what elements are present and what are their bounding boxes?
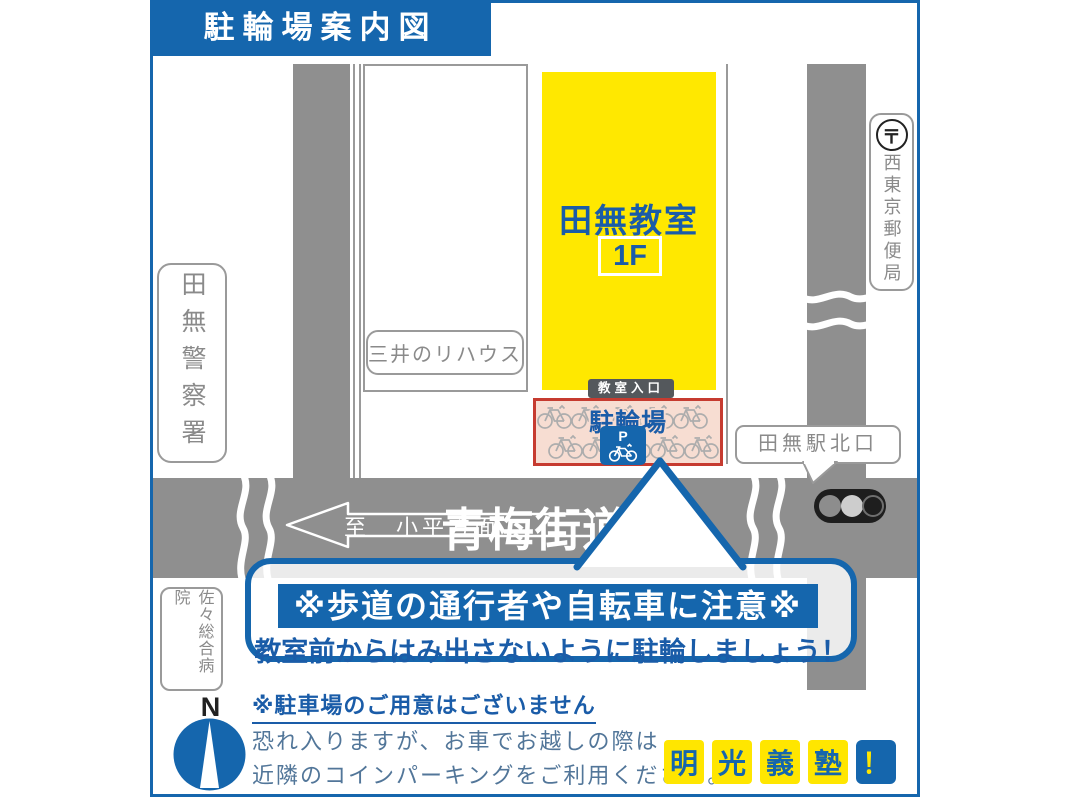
logo-exclamation-tile: ！ [856, 740, 896, 784]
landmark-post-office: 〒 西東京郵便局 [869, 113, 914, 291]
parcel-line [726, 64, 728, 464]
post-office-icon: 〒 [876, 119, 908, 151]
classroom-name: 田無教室 [542, 194, 716, 242]
parcel-line [359, 64, 361, 478]
parcel-line [353, 64, 355, 478]
logo-char: 塾 [814, 742, 842, 782]
car-note-2: 近隣のコインパーキングをご利用ください。 [252, 758, 731, 790]
compass-icon [172, 717, 247, 792]
logo-tile-3: 義 [760, 740, 800, 784]
page-title: 駐輪場案内図 [150, 0, 491, 56]
notice-line1: ※歩道の通行者や自転車に注意※ [278, 584, 818, 628]
logo-char: 明 [670, 742, 698, 782]
hospital-label: 佐々総合病院 [168, 589, 216, 689]
logo-tile-1: 明 [664, 740, 704, 784]
post-office-label: 西東京郵便局 [879, 153, 905, 285]
logo-tile-4: 塾 [808, 740, 848, 784]
police-station-label: 田無警察署 [174, 271, 210, 456]
classroom-entrance-label: 教室入口 [588, 379, 674, 398]
no-parking-note: ※駐車場のご用意はございません [252, 688, 596, 724]
landmark-hospital: 佐々総合病院 [160, 587, 223, 691]
car-note-1: 恐れ入りますが、お車でお越しの際は [252, 724, 660, 756]
notice-callout-pointer [570, 456, 750, 572]
notice-line2: 教室前からはみ出さないように駐輪しましょう！ [250, 630, 852, 669]
logo-char: ！ [862, 742, 890, 782]
logo-char: 義 [766, 742, 794, 782]
landmark-police-station: 田無警察署 [157, 263, 227, 463]
logo-char: 光 [718, 742, 746, 782]
bicycle-parking-guide-map: 駐輪場案内図 田無教室 1F 教室入口 駐輪場 P [0, 0, 1066, 800]
road-vertical-left [293, 64, 350, 480]
road-break-marks-top [805, 288, 867, 342]
logo-tile-2: 光 [712, 740, 752, 784]
classroom-floor-badge: 1F [598, 236, 662, 276]
traffic-light-icon [814, 489, 886, 523]
station-exit-bubble: 田無駅北口 [735, 425, 901, 464]
landmark-realtor: 三井のリハウス [366, 330, 524, 375]
p-sign-letter: P [618, 428, 627, 444]
bubble-tail [800, 461, 840, 485]
